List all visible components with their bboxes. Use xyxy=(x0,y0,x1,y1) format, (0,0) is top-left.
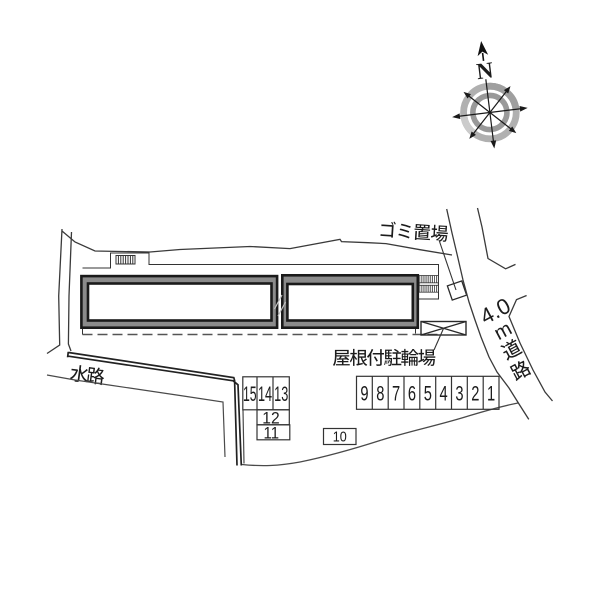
svg-text:11: 11 xyxy=(264,425,280,443)
svg-text:7: 7 xyxy=(392,382,400,405)
svg-text:N: N xyxy=(475,57,495,84)
svg-text:2: 2 xyxy=(471,382,479,405)
svg-text:10: 10 xyxy=(333,428,347,444)
svg-text:9: 9 xyxy=(360,382,368,405)
svg-text:5: 5 xyxy=(424,382,432,405)
svg-text:13: 13 xyxy=(274,382,288,406)
svg-text:15: 15 xyxy=(243,381,257,406)
svg-text:6: 6 xyxy=(408,382,416,405)
svg-text:4: 4 xyxy=(440,382,448,405)
svg-text:8: 8 xyxy=(376,382,384,405)
svg-text:14: 14 xyxy=(258,382,272,406)
svg-text:1: 1 xyxy=(487,382,495,405)
svg-text:3: 3 xyxy=(455,382,463,405)
